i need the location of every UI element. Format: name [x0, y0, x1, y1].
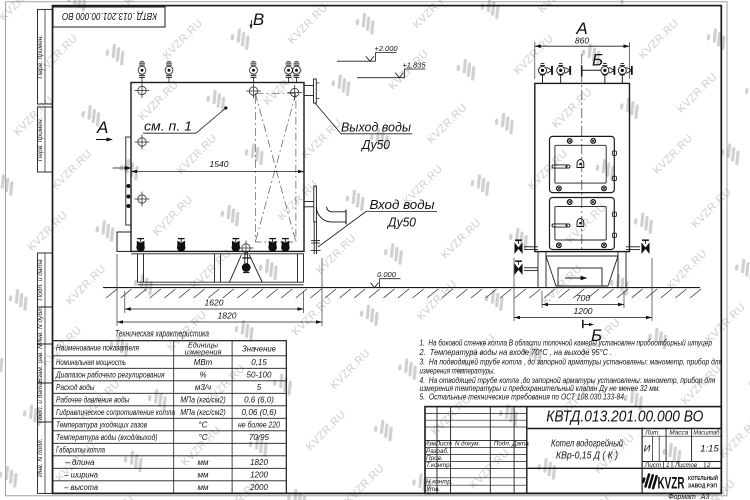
svg-text:Пров.: Пров. [426, 455, 443, 462]
svg-text:Б: Б [592, 50, 603, 69]
svg-text:Разраб.: Разраб. [426, 447, 449, 455]
svg-text:1200: 1200 [250, 471, 268, 480]
svg-text:Ду50: Ду50 [360, 138, 390, 152]
svg-text:Лист: Лист [644, 462, 661, 469]
svg-text:А: А [96, 118, 108, 137]
svg-text:0.000: 0.000 [377, 270, 397, 279]
svg-text:– ширина: – ширина [56, 471, 99, 480]
svg-text:1: 1 [666, 462, 670, 469]
svg-text:Взам. инв. N: Взам. инв. N [37, 344, 44, 383]
svg-text:КВТД.013.201.00.000 ВО: КВТД.013.201.00.000 ВО [546, 409, 703, 426]
svg-text:1820: 1820 [250, 458, 268, 467]
svg-text:измерения: измерения [185, 348, 222, 357]
svg-text:5. Остальные технические треб: 5. Остальные технические требования по О… [420, 392, 626, 401]
svg-text:700: 700 [576, 293, 590, 303]
svg-text:Подп. и дата: Подп. и дата [36, 259, 44, 301]
svg-text:1200: 1200 [574, 306, 593, 316]
svg-text:КВТД .013.201.00.000 ВО: КВТД .013.201.00.000 ВО [62, 10, 157, 22]
svg-text:1:15: 1:15 [700, 444, 719, 455]
svg-text:70/95: 70/95 [249, 433, 270, 442]
svg-text:Номинальная мощность: Номинальная мощность [56, 358, 126, 367]
svg-text:Лит.: Лит. [644, 429, 660, 436]
svg-text:Котел водогрейный: Котел водогрейный [551, 439, 623, 450]
svg-text:Масштаб: Масштаб [693, 428, 719, 436]
svg-text:5: 5 [257, 383, 262, 392]
svg-text:см. п. 1: см. п. 1 [144, 120, 192, 134]
svg-text:КОТЕЛЬНЫЙ: КОТЕЛЬНЫЙ [688, 474, 718, 482]
svg-text:Подп. и дата: Подп. и дата [36, 382, 44, 424]
svg-text:N докум.: N докум. [455, 439, 480, 447]
svg-text:Выход воды: Выход воды [341, 121, 411, 135]
svg-text:1540: 1540 [210, 159, 229, 169]
svg-text:Перв. примен.: Перв. примен. [37, 117, 44, 161]
svg-text:%: % [199, 371, 206, 380]
svg-text:Дата: Дата [511, 440, 529, 447]
svg-text:ЗАВОД РЭП: ЗАВОД РЭП [688, 483, 717, 489]
svg-text:Т.контр.: Т.контр. [426, 462, 451, 469]
svg-text:измерения температуры.: измерения температуры. [420, 366, 496, 375]
svg-text:0,15: 0,15 [251, 358, 267, 367]
svg-text:1820: 1820 [218, 311, 237, 321]
svg-text:мм: мм [198, 458, 209, 467]
svg-text:Температура воды (вход/выход): Температура воды (вход/выход) [56, 433, 158, 442]
svg-text:°С: °С [199, 421, 208, 430]
svg-text:Значение: Значение [242, 345, 277, 354]
svg-text:В: В [253, 10, 264, 29]
svg-text:Габариты котла: Габариты котла [56, 446, 105, 455]
svg-text:КВр-0,15 Д ( К ): КВр-0,15 Д ( К ) [556, 451, 618, 462]
svg-text:1. На боковой стенке котла В: 1. На боковой стенке котла В области топ… [420, 338, 713, 347]
svg-text:мм: мм [198, 483, 209, 492]
svg-text:Техническая характеристика: Техническая характеристика [115, 329, 209, 339]
svg-text:Расход воды: Расход воды [56, 383, 95, 392]
svg-text:И: И [644, 444, 651, 455]
svg-text:50-100: 50-100 [247, 371, 272, 380]
svg-text:+1.835: +1.835 [402, 61, 426, 70]
svg-text:+2.000: +2.000 [374, 44, 398, 53]
svg-text:Инв. N подл.: Инв. N подл. [36, 438, 44, 477]
svg-text:Подп.: Подп. [494, 439, 511, 447]
svg-text:– длина: – длина [56, 458, 95, 467]
svg-text:А3: А3 [700, 494, 710, 500]
svg-text:KVZR: KVZR [658, 474, 685, 492]
svg-text:Перв. примен.: Перв. примен. [37, 35, 44, 79]
svg-text:Гидравлическое сопротивление к: Гидравлическое сопротивление котла [56, 408, 175, 417]
svg-text:0,06 (0,6): 0,06 (0,6) [242, 408, 277, 417]
svg-text:МПа (кгс/см2): МПа (кгс/см2) [180, 408, 226, 417]
svg-text:3. На подводящей трубе котла: 3. На подводящей трубе котла , до запорн… [420, 358, 723, 367]
svg-text:Рабочее давление воды: Рабочее давление воды [56, 396, 130, 405]
svg-text:Вход воды: Вход воды [370, 198, 435, 212]
svg-text:м3/ч: м3/ч [195, 383, 211, 392]
svg-text:не более 220: не более 220 [238, 421, 280, 430]
svg-text:мм: мм [198, 471, 209, 480]
svg-text:Диапазон рабочего регулировани: Диапазон рабочего регулирования [55, 371, 165, 380]
svg-text:Инв. N дубл.: Инв. N дубл. [36, 306, 44, 344]
svg-text:1620: 1620 [205, 298, 224, 308]
svg-text:Масса: Масса [669, 429, 688, 436]
svg-text:Лист: Лист [435, 440, 452, 447]
svg-text:МВт: МВт [194, 358, 213, 367]
svg-text:Формат: Формат [668, 494, 696, 500]
svg-text:°С: °С [199, 433, 208, 442]
svg-text:2. Температура воды на входе: 2. Температура воды на входе 70°С , на в… [419, 348, 613, 357]
svg-text:Ду50: Ду50 [386, 216, 416, 230]
svg-text:2000: 2000 [249, 483, 268, 492]
svg-text:Утв.: Утв. [425, 486, 440, 493]
svg-text:Листов: Листов [674, 462, 698, 469]
svg-text:А: А [575, 19, 587, 38]
svg-text:0,6 (6,0): 0,6 (6,0) [244, 396, 274, 405]
svg-text:Наименование показателя: Наименование показателя [56, 344, 140, 353]
svg-text:Н.контр.: Н.контр. [426, 479, 453, 486]
svg-text:МПа (кгс/см2): МПа (кгс/см2) [180, 396, 226, 405]
svg-text:2: 2 [706, 462, 711, 469]
svg-text:– высота: – высота [56, 483, 99, 492]
svg-text:Температура уходящих газов: Температура уходящих газов [56, 421, 147, 430]
